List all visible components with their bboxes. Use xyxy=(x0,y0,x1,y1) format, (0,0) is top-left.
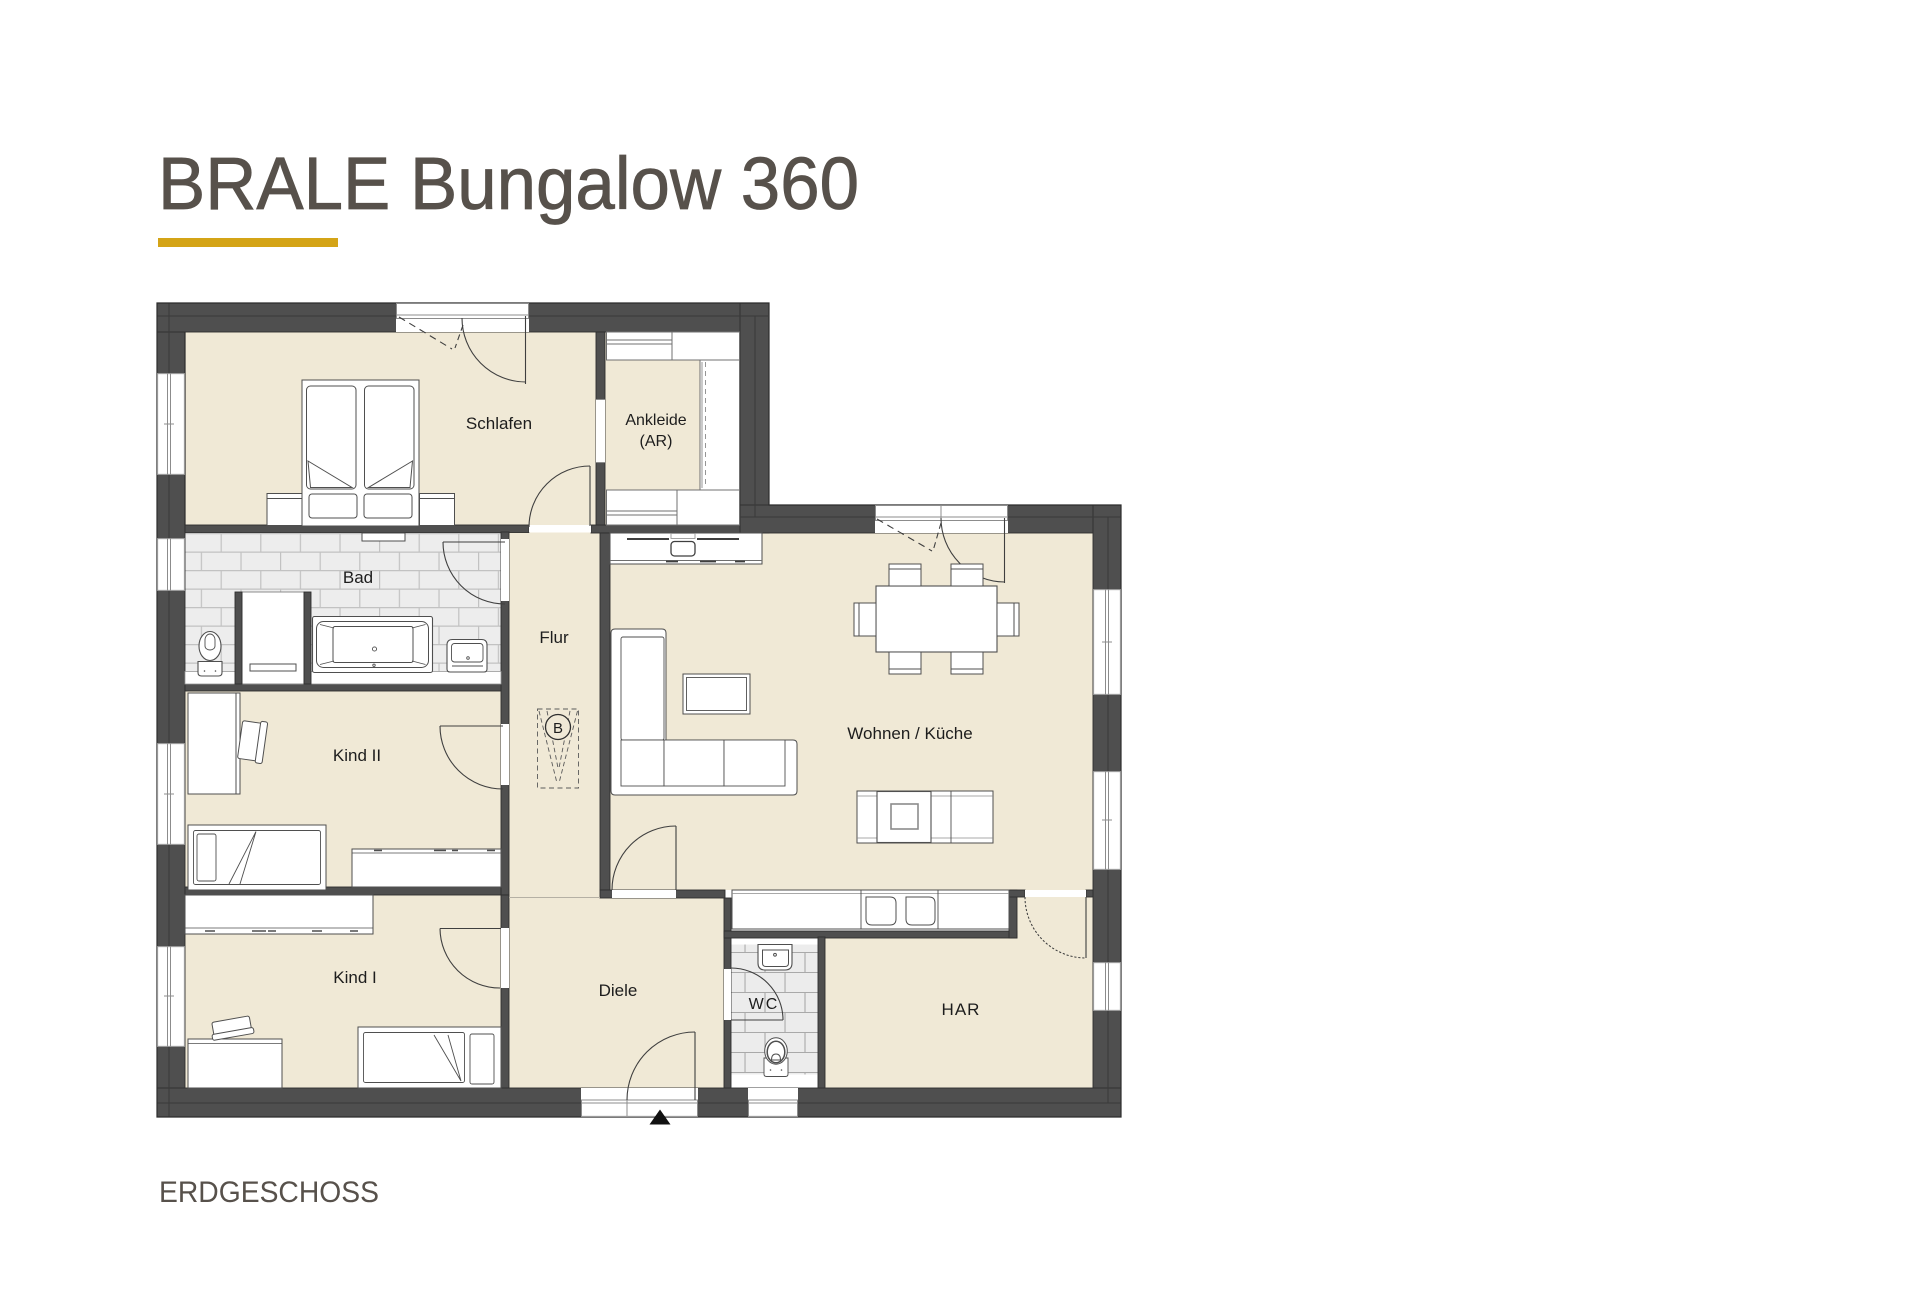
svg-text:WC: WC xyxy=(749,996,780,1013)
svg-text:(AR): (AR) xyxy=(640,433,673,450)
svg-text:Flur: Flur xyxy=(539,628,569,647)
svg-text:Ankleide: Ankleide xyxy=(625,412,686,429)
svg-text:Schlafen: Schlafen xyxy=(466,414,532,433)
svg-text:Wohnen / Küche: Wohnen / Küche xyxy=(847,724,972,743)
svg-text:BRALE Bungalow 360: BRALE Bungalow 360 xyxy=(158,142,859,225)
svg-text:Bad: Bad xyxy=(343,568,373,587)
svg-text:Kind II: Kind II xyxy=(333,746,381,765)
svg-text:Diele: Diele xyxy=(599,981,638,1000)
svg-text:HAR: HAR xyxy=(942,1000,981,1019)
svg-text:Kind I: Kind I xyxy=(333,968,376,987)
svg-text:B: B xyxy=(553,720,563,737)
svg-text:ERDGESCHOSS: ERDGESCHOSS xyxy=(159,1176,379,1209)
